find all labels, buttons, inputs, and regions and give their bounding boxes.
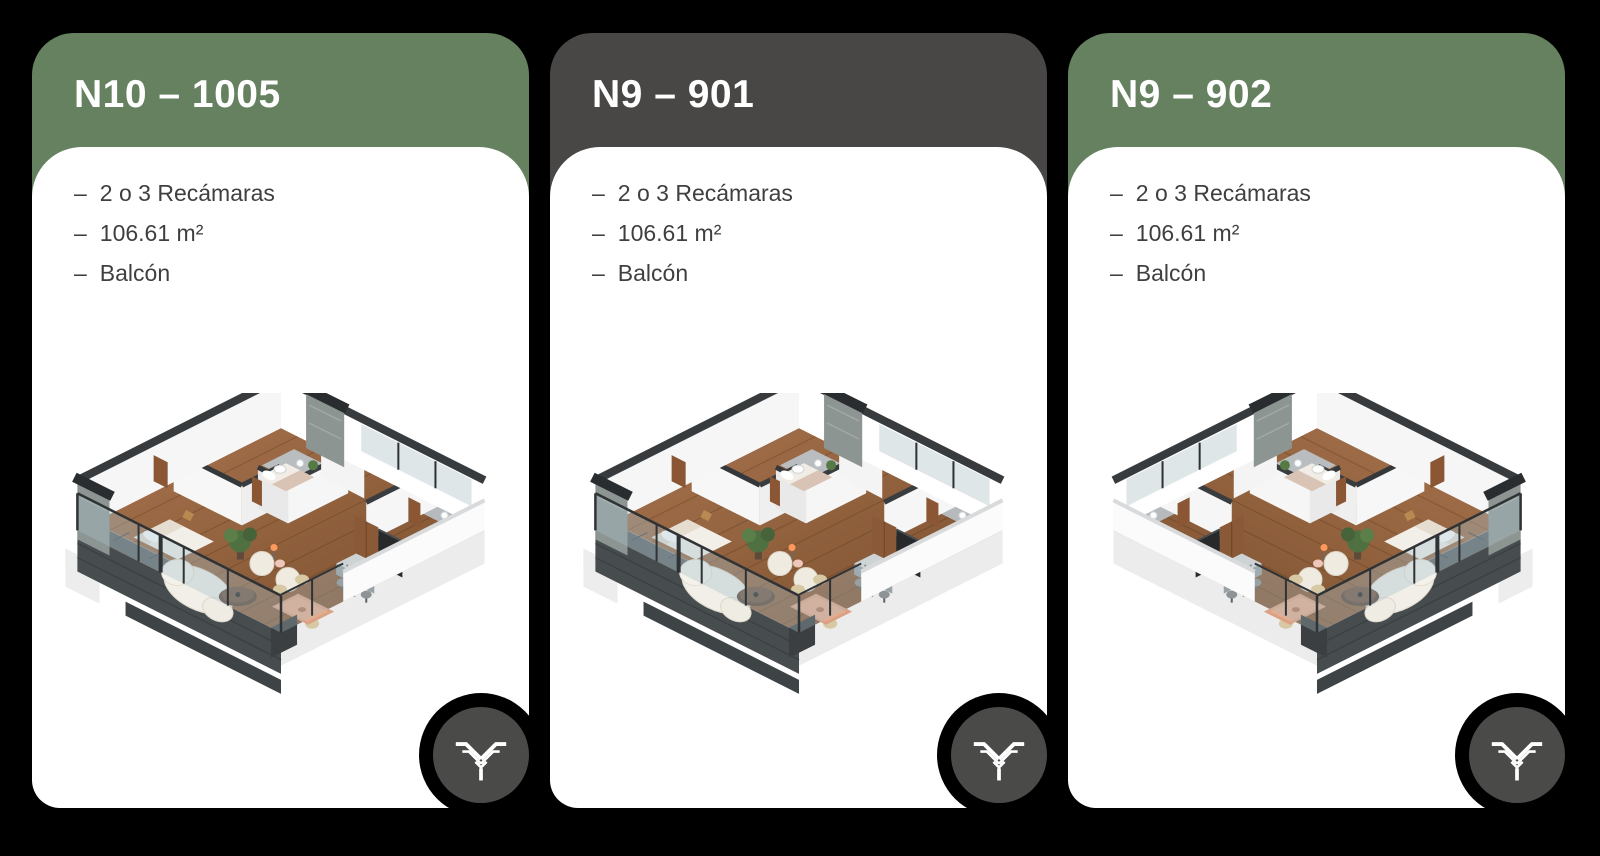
dash-marker: – — [1110, 173, 1123, 213]
dash-marker: – — [1110, 213, 1123, 253]
floor-plan-image — [1099, 393, 1535, 729]
dash-marker: – — [74, 173, 87, 213]
unit-card-n10-1005[interactable]: N10 – 1005 –2 o 3 Recámaras –106.61 m² –… — [32, 33, 529, 808]
feature-item: –2 o 3 Recámaras — [592, 173, 1047, 213]
dash-marker: – — [74, 213, 87, 253]
dash-marker: – — [74, 253, 87, 293]
dash-marker: – — [592, 173, 605, 213]
floor-plan-image — [63, 393, 499, 729]
dash-marker: – — [592, 253, 605, 293]
dash-marker: – — [1110, 253, 1123, 293]
feature-list: –2 o 3 Recámaras –106.61 m² –Balcón — [32, 147, 529, 293]
unit-title: N10 – 1005 — [32, 33, 529, 117]
brand-wings-logo-icon — [971, 736, 1027, 782]
dash-marker: – — [592, 213, 605, 253]
unit-title: N9 – 901 — [550, 33, 1047, 117]
unit-cards-row: N10 – 1005 –2 o 3 Recámaras –106.61 m² –… — [32, 33, 1565, 808]
page-background: { "page": { "background": "#000000" }, "… — [0, 0, 1600, 856]
unit-card-n9-902[interactable]: N9 – 902 –2 o 3 Recámaras –106.61 m² –Ba… — [1068, 33, 1565, 808]
brand-wings-logo-icon — [1489, 736, 1545, 782]
feature-item: –Balcón — [592, 253, 1047, 293]
brand-wings-logo-icon — [453, 736, 509, 782]
brand-badge — [1469, 707, 1565, 803]
feature-list: –2 o 3 Recámaras –106.61 m² –Balcón — [1068, 147, 1565, 293]
feature-item: –106.61 m² — [592, 213, 1047, 253]
feature-item: –106.61 m² — [1110, 213, 1565, 253]
feature-item: –Balcón — [1110, 253, 1565, 293]
brand-badge — [951, 707, 1047, 803]
brand-badge — [433, 707, 529, 803]
feature-item: –2 o 3 Recámaras — [1110, 173, 1565, 213]
feature-list: –2 o 3 Recámaras –106.61 m² –Balcón — [550, 147, 1047, 293]
floor-plan-image — [581, 393, 1017, 729]
unit-card-n9-901[interactable]: N9 – 901 –2 o 3 Recámaras –106.61 m² –Ba… — [550, 33, 1047, 808]
feature-item: –106.61 m² — [74, 213, 529, 253]
feature-item: –Balcón — [74, 253, 529, 293]
feature-item: –2 o 3 Recámaras — [74, 173, 529, 213]
unit-title: N9 – 902 — [1068, 33, 1565, 117]
